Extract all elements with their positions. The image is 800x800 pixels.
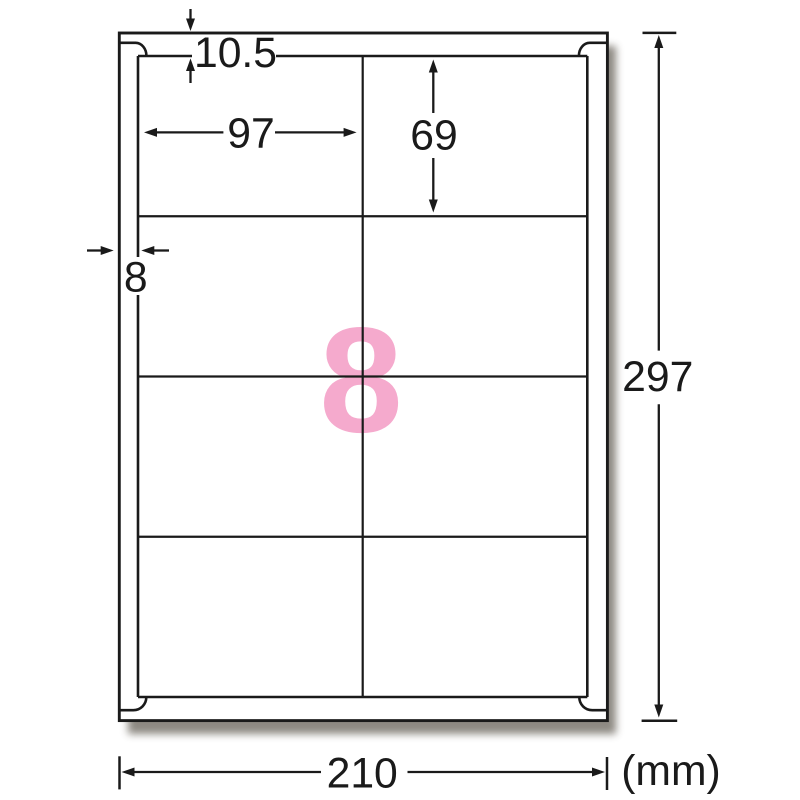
svg-text:69: 69 (410, 112, 457, 160)
svg-text:97: 97 (227, 110, 274, 158)
svg-text:(mm): (mm) (621, 747, 721, 795)
svg-text:10.5: 10.5 (194, 29, 277, 77)
svg-text:8: 8 (319, 296, 402, 464)
svg-text:8: 8 (124, 254, 148, 302)
svg-text:297: 297 (622, 353, 693, 401)
svg-text:210: 210 (327, 750, 398, 798)
